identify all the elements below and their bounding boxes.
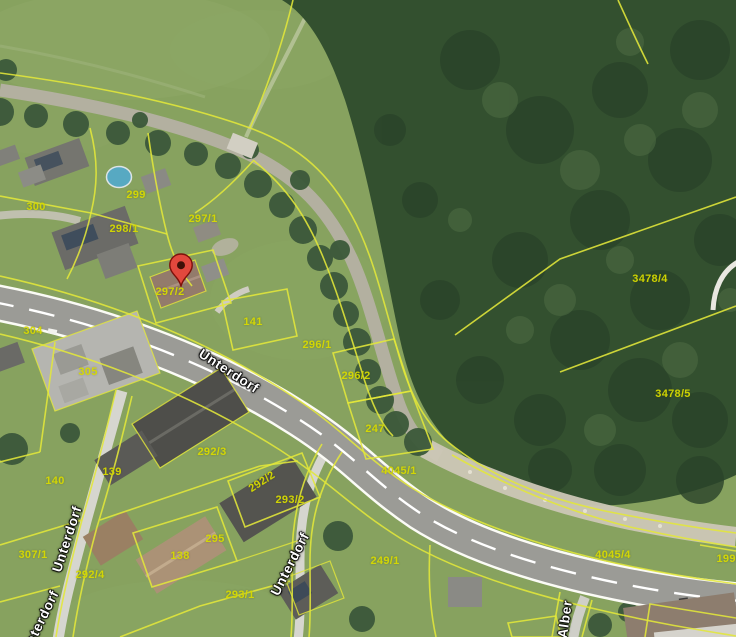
swimming-pool — [107, 167, 132, 188]
location-marker[interactable] — [168, 253, 194, 287]
marker-pin-icon — [170, 254, 192, 286]
aerial-imagery — [0, 0, 736, 637]
map-viewport[interactable]: 300299298/1297/1297/2304305141296/1296/2… — [0, 0, 736, 637]
